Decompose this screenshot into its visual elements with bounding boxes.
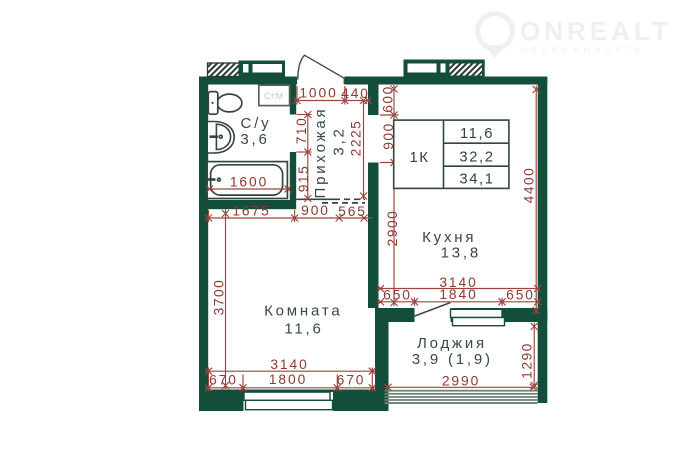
svg-text:670: 670 <box>337 372 366 387</box>
svg-text:С/у: С/у <box>241 115 272 132</box>
svg-text:1840: 1840 <box>439 287 477 302</box>
svg-text:1675: 1675 <box>232 203 270 218</box>
svg-text:600: 600 <box>381 85 396 113</box>
svg-text:11,6: 11,6 <box>460 126 494 142</box>
svg-text:4400: 4400 <box>522 167 537 204</box>
svg-text:3140: 3140 <box>270 357 308 372</box>
svg-text:670: 670 <box>209 372 238 387</box>
svg-text:3,9 (1,9): 3,9 (1,9) <box>412 351 493 368</box>
svg-text:ONREALT: ONREALT <box>520 16 672 46</box>
svg-text:440: 440 <box>341 86 370 101</box>
svg-text:1600: 1600 <box>230 174 268 189</box>
svg-text:650: 650 <box>383 288 412 303</box>
svg-text:Прихожая: Прихожая <box>312 107 329 199</box>
svg-text:Лоджия: Лоджия <box>417 335 487 352</box>
svg-text:1К: 1К <box>409 150 429 166</box>
svg-text:3,2: 3,2 <box>331 126 348 155</box>
svg-text:Кухня: Кухня <box>422 229 476 246</box>
svg-text:11,6: 11,6 <box>284 321 323 338</box>
svg-text:32,2: 32,2 <box>459 150 494 166</box>
svg-text:650: 650 <box>506 288 535 303</box>
svg-text:1000: 1000 <box>299 86 337 101</box>
svg-text:3700: 3700 <box>212 279 227 316</box>
svg-text:900: 900 <box>301 203 330 218</box>
svg-text:2225: 2225 <box>349 120 364 157</box>
svg-text:565: 565 <box>338 204 367 219</box>
svg-text:СтМ: СтМ <box>264 91 284 101</box>
svg-text:710: 710 <box>294 117 309 145</box>
svg-text:2990: 2990 <box>442 373 480 388</box>
svg-text:915: 915 <box>296 165 311 193</box>
svg-text:34,1: 34,1 <box>459 172 494 188</box>
svg-text:13,8: 13,8 <box>441 245 481 262</box>
svg-text:1290: 1290 <box>520 342 535 379</box>
svg-text:2900: 2900 <box>385 210 400 247</box>
svg-text:3,6: 3,6 <box>240 131 269 148</box>
svg-text:НЕДВИЖИМОСТЬ: НЕДВИЖИМОСТЬ <box>521 45 645 55</box>
svg-text:Комната: Комната <box>264 302 342 319</box>
svg-text:1800: 1800 <box>269 372 307 387</box>
